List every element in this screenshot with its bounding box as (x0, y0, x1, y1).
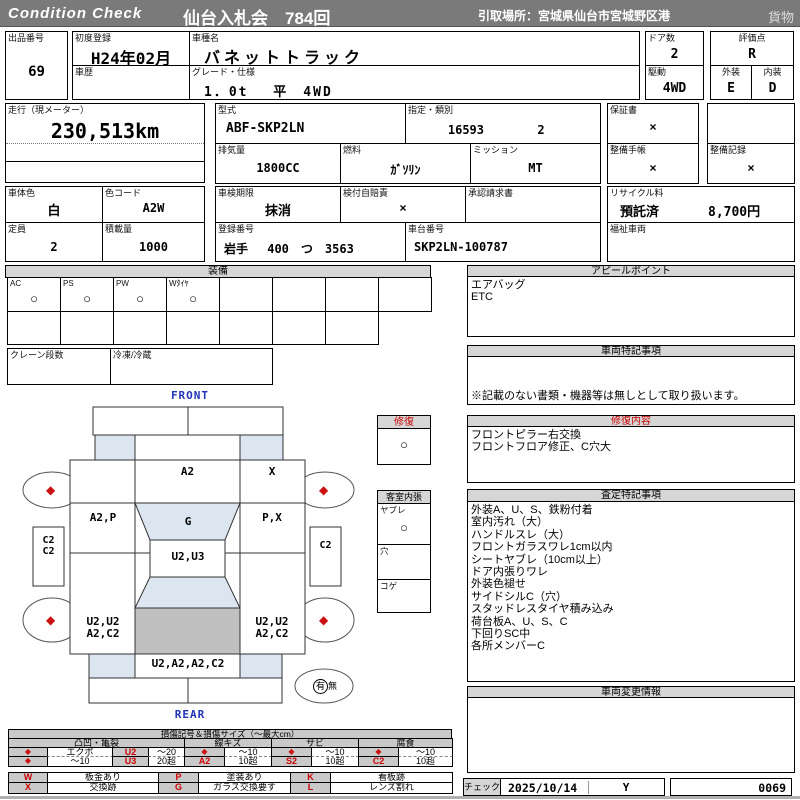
equipment-cell-empty (7, 311, 61, 345)
equipment-cell-empty (378, 277, 432, 312)
approval-request-label: 承認請求書 (468, 188, 513, 198)
equipment-mark: ○ (61, 291, 113, 306)
drive-label: 駆動 (648, 67, 666, 77)
sheet-bottom-rule (0, 796, 800, 799)
cabin-lining-box: 客室内張 ヤブレ ○ 穴 コゲ (377, 490, 431, 613)
model-code-value: ABF-SKP2LN (226, 121, 405, 136)
rear-bumper (89, 678, 282, 703)
equipment-label: AC (10, 279, 21, 289)
doors-label: ドア数 (648, 33, 675, 43)
assessment-line: ハンドルスレ（大） (468, 529, 794, 541)
panel-bed-left-line2: A2,C2 (71, 628, 135, 640)
class-number-value2: 2 (531, 123, 551, 137)
drive-box: 駆動 4WD (645, 65, 704, 100)
assessment-line: 各所メンバーC (468, 640, 794, 652)
score-value: R (711, 47, 793, 62)
repair-detail-line: フロントフロア修正、C穴大 (468, 441, 794, 453)
exterior-grade-label: 外装 (711, 67, 751, 77)
repair-flag-mark: ○ (378, 437, 430, 452)
assessment-line: シートヤブレ（10cm以上） (468, 554, 794, 566)
lot-number-value: 69 (6, 64, 67, 80)
cargo-bed (135, 608, 240, 654)
equipment-cell-wtire: Wﾀｲﾔ ○ (166, 277, 220, 312)
spare-no: 無 (328, 681, 337, 691)
capacity-value: 2 (6, 240, 102, 254)
check-date-value: 2025/10/14 (508, 781, 577, 795)
check-number-box: 0069 (670, 778, 792, 796)
body-color-value: 白 (6, 200, 102, 219)
rear-label: REAR (160, 709, 220, 721)
displacement-value: 1800CC (216, 161, 340, 175)
notes-disclaimer: ※記載のない書類・機器等は無しとして取り扱います。 (468, 390, 745, 402)
displacement-label: 排気量 (218, 145, 245, 155)
appeal-line: ETC (468, 291, 794, 303)
color-code-label: 色コード (105, 188, 141, 198)
equipment-cell-ps: PS ○ (60, 277, 114, 312)
registration-number-box: 登録番号 岩手 400 つ 3563 (215, 222, 406, 262)
equipment-mark: ○ (167, 291, 219, 306)
assessment-line: スタッドレスタイヤ積み込み (468, 603, 794, 615)
capacity-label: 定員 (8, 224, 26, 234)
equipment-cell-empty (166, 311, 220, 345)
check-number-value: 0069 (758, 781, 786, 795)
legend-desc-g: ガラス交換要す (198, 782, 291, 794)
equipment-label: PS (63, 279, 74, 289)
change-info-box (467, 697, 795, 773)
equipment-mark: ○ (8, 291, 60, 306)
assessment-line: 室内汚れ（大） (468, 516, 794, 528)
assessment-line: サイドシルC（穴） (468, 591, 794, 603)
insurance-label: 検付自賠責 (343, 188, 388, 198)
legend-code-x: X (8, 782, 48, 794)
equipment-cell-empty (219, 277, 273, 312)
welfare-vehicle-label: 福祉車両 (610, 224, 646, 234)
panel-hood: A2 (135, 466, 240, 478)
exterior-grade-value: E (711, 81, 751, 96)
legend-dent-size2: 20超 (148, 756, 185, 767)
legend-dent-name2: ～10 (47, 756, 113, 767)
transmission-label: ミッション (473, 145, 518, 155)
inspection-label: 車検期限 (218, 188, 254, 198)
fuel-value: ｶﾞｿﾘﾝ (341, 161, 470, 178)
legend-corrosion-code2: C2 (358, 756, 399, 767)
cabin-lining-row-mark: ○ (378, 520, 430, 535)
model-code-box: 型式 ABF-SKP2LN (215, 103, 406, 144)
panel-sill-left-line1: C2 (33, 535, 64, 546)
model-code-label: 型式 (218, 105, 236, 115)
insurance-value: × (341, 201, 465, 215)
lot-number-box: 出品番号 69 (5, 31, 68, 100)
legend-code-l: L (290, 782, 331, 794)
load-capacity-label: 積載量 (105, 224, 132, 234)
panel-cab-center: U2,U3 (151, 551, 225, 563)
panel-front-right: X (240, 466, 304, 478)
warranty-value: × (608, 120, 698, 134)
fuel-box: 燃料 ｶﾞｿﾘﾝ (340, 143, 471, 184)
equipment-cell-ac: AC ○ (7, 277, 61, 312)
assessment-line: ドア内張りワレ (468, 566, 794, 578)
doors-value: 2 (646, 47, 703, 62)
color-code-box: 色コード A2W (102, 186, 205, 223)
interior-grade-label: 内装 (752, 67, 793, 77)
pickup-location: 引取場所：宮城県仙台市宮城野区港 (478, 7, 670, 24)
spare-tire-flag: 有無 (298, 679, 352, 694)
transmission-value: MT (471, 161, 600, 175)
body-color-label: 車体色 (8, 188, 35, 198)
load-capacity-value: 1000 (103, 240, 204, 254)
chassis-number-label: 車台番号 (408, 224, 444, 234)
legend-code-g: G (158, 782, 199, 794)
wheel-mark-icon: ◆ (319, 614, 328, 626)
sill-right (310, 527, 341, 586)
assessment-line: 荷台板A、U、S、C (468, 616, 794, 628)
appeal-line: エアバッグ (468, 279, 794, 291)
fuel-label: 燃料 (343, 145, 361, 155)
vehicle-notes-box: ※記載のない書類・機器等は無しとして取り扱います。 (467, 356, 795, 405)
legend-desc-l: レンズ割れ (330, 782, 453, 794)
first-registration-box: 初度登録 H24年02月 (72, 31, 190, 66)
panel-sill-right: C2 (310, 540, 341, 552)
equipment-cell-empty (219, 311, 273, 345)
equipment-cell-empty (325, 311, 379, 345)
interior-grade-box: 内装 D (751, 65, 794, 100)
mileage-value: 230,513km (6, 119, 204, 143)
repair-flag-header: 修復 (378, 416, 430, 429)
maintenance-book-box: 整備手帳 × (607, 143, 699, 184)
maintenance-record-box: 整備記録 × (707, 143, 795, 184)
recycle-fee-label: リサイクル料 (610, 188, 664, 198)
cabin-lining-row-label: 穴 (380, 546, 389, 556)
model-name-box: 車種名 バネットトラック (189, 31, 640, 66)
assessment-line: フロントガラスワレ1cm以内 (468, 541, 794, 553)
equipment-cell-empty (60, 311, 114, 345)
divider (6, 143, 204, 144)
panel-bed-left: U2,U2 A2,C2 (71, 616, 135, 640)
mileage-label: 走行（現メーター） (8, 105, 89, 115)
equipment-label: PW (116, 279, 129, 289)
cabin-lining-row-label: コゲ (380, 581, 397, 591)
panel-sill-left-line2: C2 (33, 546, 64, 557)
equipment-cell-pw: PW ○ (113, 277, 167, 312)
crane-stage-box: クレーン段数 (7, 348, 111, 385)
crane-stage-label: クレーン段数 (10, 350, 64, 360)
class-number-value1: 16593 (424, 123, 484, 137)
legend-corrosion-size2: 10超 (398, 756, 453, 767)
warranty-label: 保証書 (610, 105, 637, 115)
equipment-cell-empty (272, 277, 326, 312)
registration-number-label: 登録番号 (218, 224, 254, 234)
header-bar: Condition Check 仙台入札会 784回 引取場所：宮城県仙台市宮城… (0, 0, 800, 27)
assessment-line: 下回りSC中 (468, 628, 794, 640)
auction-title: 仙台入札会 784回 (183, 4, 330, 29)
grade-box: グレード・仕様 1．0t 平 4WD (189, 65, 640, 100)
front-corner-left (95, 435, 135, 461)
legend-rust-code2: S2 (271, 756, 312, 767)
equipment-cell-empty (272, 311, 326, 345)
registration-number-value: 岩手 400 つ 3563 (224, 240, 405, 257)
class-number-box: 指定・類別 16593 2 (405, 103, 601, 144)
panel-bed-right-line2: A2,C2 (240, 628, 304, 640)
displacement-box: 排気量 1800CC (215, 143, 341, 184)
assessment-line: 外装A、U、S、鉄粉付着 (468, 504, 794, 516)
wheel-mark-icon: ◆ (46, 484, 55, 496)
front-corner-right (240, 435, 283, 461)
auction-sheet: Condition Check 仙台入札会 784回 引取場所：宮城県仙台市宮城… (0, 0, 800, 800)
legend-rust-size2: 10超 (311, 756, 359, 767)
transmission-box: ミッション MT (470, 143, 601, 184)
cabin-lining-header: 客室内張 (378, 491, 430, 504)
drive-value: 4WD (646, 81, 703, 96)
class-number-label: 指定・類別 (408, 105, 453, 115)
wheel-mark-icon: ◆ (319, 484, 328, 496)
repair-flag-box: 修復 ○ (377, 415, 431, 465)
load-capacity-box: 積載量 1000 (102, 222, 205, 262)
panel-door-left: A2,P (71, 512, 135, 524)
cabin-lining-row-tear: ヤブレ ○ (378, 504, 430, 544)
chassis-number-value: SKP2LN-100787 (414, 240, 600, 254)
capacity-box: 定員 2 (5, 222, 103, 262)
panel-rear: U2,A2,A2,C2 (123, 658, 253, 670)
panel-bed-right: U2,U2 A2,C2 (240, 616, 304, 640)
check-label-cell: チェック (463, 778, 501, 796)
recycle-fee-box: リサイクル料 預託済 8,700円 (607, 186, 795, 223)
fridge-label: 冷凍/冷蔵 (113, 350, 152, 360)
rear-window-glass (135, 577, 240, 608)
body-color-box: 車体色 白 (5, 186, 103, 223)
panel-roof-glass: G (151, 516, 225, 528)
front-label: FRONT (160, 390, 220, 402)
repair-detail-box: フロントピラー右交換 フロントフロア修正、C穴大 (467, 426, 795, 483)
repair-detail-line: フロントピラー右交換 (468, 429, 794, 441)
insurance-box: 検付自賠責 × (340, 186, 466, 223)
panel-sill-left: C2 C2 (33, 535, 64, 557)
cargo-tag: 貨物 (768, 7, 794, 26)
maintenance-book-value: × (608, 161, 698, 175)
brand-logo: Condition Check (8, 5, 142, 22)
legend-scratch-size2: 10超 (224, 756, 272, 767)
history-label: 車歴 (75, 67, 93, 77)
maintenance-record-value: × (708, 161, 794, 175)
approval-request-box: 承認請求書 (465, 186, 601, 223)
diamond-icon: ◆ (8, 756, 48, 767)
model-name-label: 車種名 (192, 33, 219, 43)
grade-label: グレード・仕様 (192, 67, 255, 77)
appeal-box: エアバッグ ETC (467, 276, 795, 337)
assessment-box: 外装A、U、S、鉄粉付着 室内汚れ（大） ハンドルスレ（大） フロントガラスワレ… (467, 501, 795, 682)
doors-box: ドア数 2 (645, 31, 704, 66)
warranty-spare-box (707, 103, 795, 144)
maintenance-book-label: 整備手帳 (610, 145, 646, 155)
recycle-fee-value: 8,700円 (708, 201, 794, 220)
equipment-cell-empty (113, 311, 167, 345)
chassis-number-box: 車台番号 SKP2LN-100787 (405, 222, 601, 262)
cabin-lining-row-burn: コゲ (378, 579, 430, 613)
score-box: 評価点 R (710, 31, 794, 66)
interior-grade-value: D (752, 81, 793, 96)
spare-yes-circled: 有 (313, 679, 328, 694)
color-code-value: A2W (103, 201, 204, 215)
legend-dent-code2: U3 (112, 756, 149, 767)
mileage-box: 走行（現メーター） 230,513km (5, 103, 205, 183)
exterior-grade-box: 外装 E (710, 65, 752, 100)
score-label: 評価点 (711, 33, 793, 43)
first-registration-label: 初度登録 (75, 33, 111, 43)
inspection-value: 抹消 (216, 200, 340, 219)
inspection-box: 車検期限 抹消 (215, 186, 341, 223)
legend-desc-x: 交換跡 (47, 782, 159, 794)
equipment-cell-empty (325, 277, 379, 312)
equipment-label: Wﾀｲﾔ (169, 279, 189, 289)
divider (6, 161, 204, 162)
wheel-mark-icon: ◆ (46, 614, 55, 626)
cabin-lining-row-hole: 穴 (378, 544, 430, 579)
grade-value: 1．0t 平 4WD (204, 81, 639, 100)
equipment-mark: ○ (114, 291, 166, 306)
fridge-box: 冷凍/冷蔵 (110, 348, 273, 385)
welfare-vehicle-box: 福祉車両 (607, 222, 795, 262)
check-date-box: 2025/10/14 Y (500, 778, 665, 796)
maintenance-record-label: 整備記録 (710, 145, 746, 155)
warranty-box: 保証書 × (607, 103, 699, 144)
legend-scratch-code2: A2 (184, 756, 225, 767)
panel-door-right: P,X (240, 512, 304, 524)
check-mark-value: Y (588, 781, 664, 794)
lot-number-label: 出品番号 (8, 33, 44, 43)
assessment-line: 外装色褪せ (468, 578, 794, 590)
history-box: 車歴 (72, 65, 190, 100)
cabin-lining-row-label: ヤブレ (380, 505, 406, 515)
